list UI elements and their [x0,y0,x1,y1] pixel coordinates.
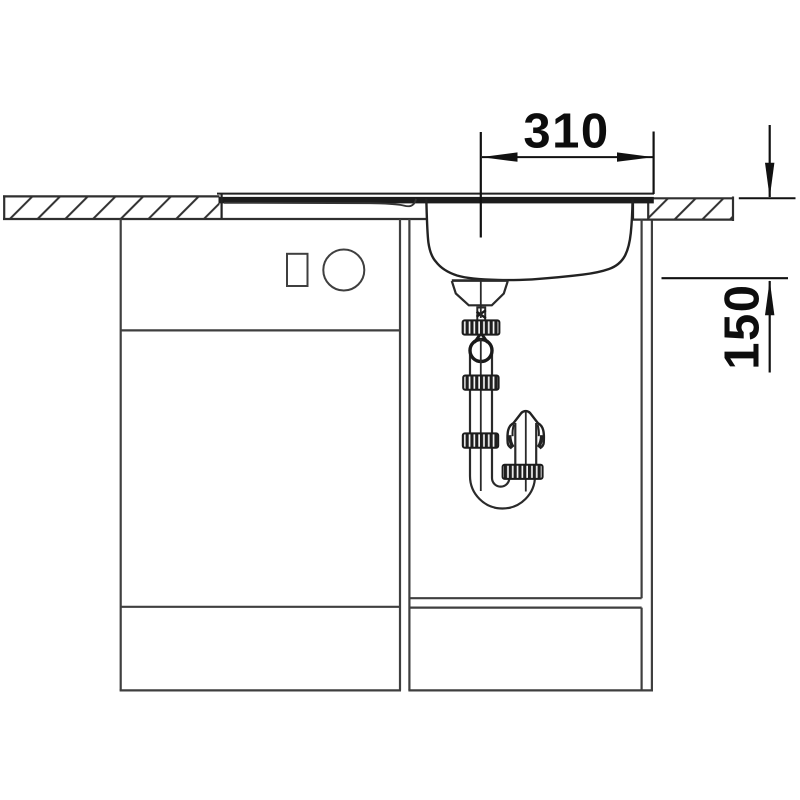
svg-text:150: 150 [716,283,770,369]
svg-text:310: 310 [523,104,609,158]
